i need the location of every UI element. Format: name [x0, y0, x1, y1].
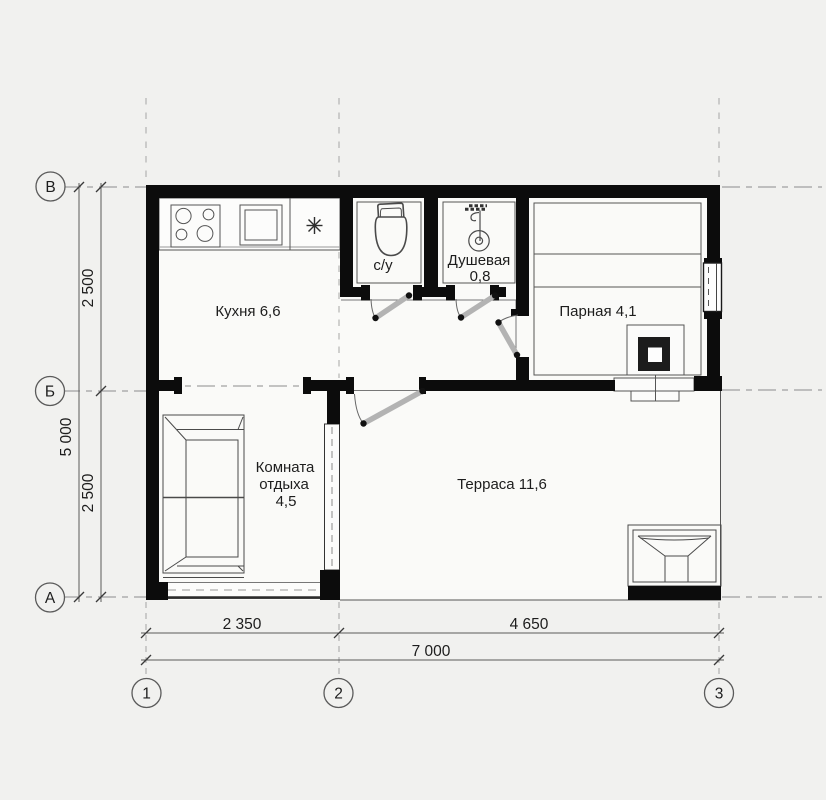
- svg-text:2 500: 2 500: [80, 268, 97, 307]
- svg-text:4 650: 4 650: [510, 616, 549, 633]
- svg-text:2: 2: [334, 686, 343, 703]
- svg-text:Парная 4,1: Парная 4,1: [559, 303, 636, 320]
- svg-text:с/у: с/у: [373, 257, 393, 274]
- svg-text:2 350: 2 350: [223, 616, 262, 633]
- svg-text:А: А: [45, 590, 56, 607]
- svg-text:В: В: [45, 179, 55, 196]
- svg-text:7 000: 7 000: [412, 643, 451, 660]
- svg-text:Душевая: Душевая: [448, 252, 511, 269]
- svg-text:3: 3: [715, 686, 724, 703]
- svg-text:5 000: 5 000: [58, 417, 75, 456]
- svg-text:4,5: 4,5: [276, 493, 297, 510]
- svg-text:Терраса 11,6: Терраса 11,6: [457, 476, 547, 493]
- svg-text:Б: Б: [45, 384, 55, 401]
- svg-text:Комната: Комната: [256, 459, 315, 476]
- svg-text:отдыха: отдыха: [259, 476, 309, 493]
- svg-text:1: 1: [142, 686, 151, 703]
- svg-text:2 500: 2 500: [80, 473, 97, 512]
- svg-text:Кухня 6,6: Кухня 6,6: [215, 303, 280, 320]
- svg-text:0,8: 0,8: [470, 268, 491, 285]
